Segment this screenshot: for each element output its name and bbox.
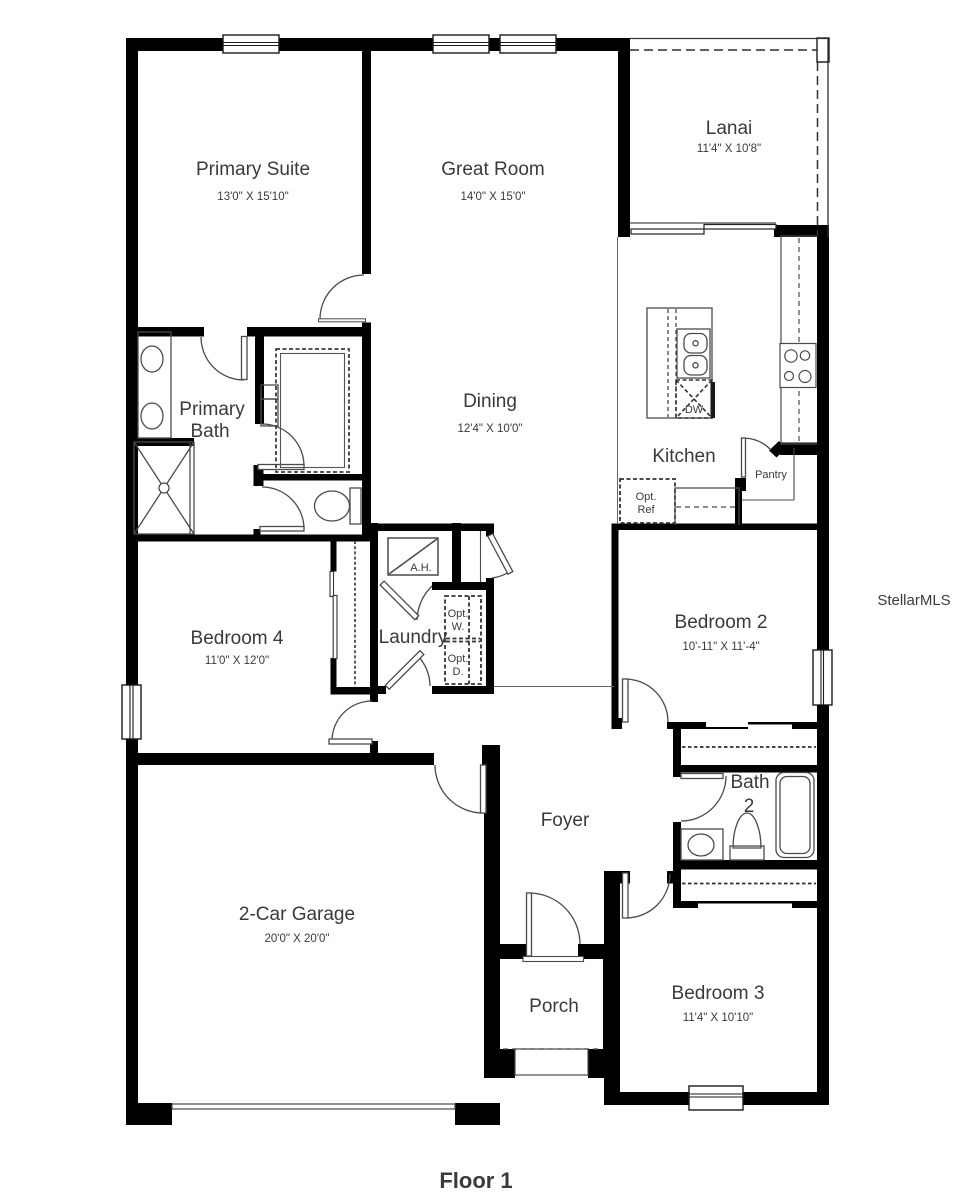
svg-text:Dining: Dining — [463, 391, 517, 412]
svg-text:20'0" X 20'0": 20'0" X 20'0" — [265, 933, 330, 945]
svg-text:Ref: Ref — [637, 504, 655, 516]
svg-text:Primary Suite: Primary Suite — [196, 159, 310, 180]
svg-text:Bath: Bath — [190, 421, 229, 442]
svg-text:2: 2 — [744, 796, 755, 817]
svg-text:A.H.: A.H. — [410, 562, 431, 574]
svg-text:StellarMLS: StellarMLS — [877, 592, 950, 609]
svg-text:Pantry: Pantry — [755, 469, 787, 481]
svg-text:Foyer: Foyer — [541, 810, 590, 831]
svg-text:Bedroom 3: Bedroom 3 — [672, 983, 765, 1004]
svg-text:D.: D. — [453, 666, 464, 678]
svg-text:Bath: Bath — [730, 772, 769, 793]
svg-text:14'0" X 15'0": 14'0" X 15'0" — [461, 191, 526, 203]
svg-text:Opt.: Opt. — [448, 653, 469, 665]
svg-text:Laundry: Laundry — [379, 627, 448, 648]
svg-text:Primary: Primary — [179, 399, 245, 420]
svg-text:Porch: Porch — [529, 996, 579, 1017]
svg-text:10'-11" X 11'-4": 10'-11" X 11'-4" — [682, 641, 759, 653]
svg-text:13'0" X 15'10": 13'0" X 15'10" — [217, 191, 288, 203]
svg-text:Floor 1: Floor 1 — [439, 1168, 512, 1193]
svg-text:DW: DW — [685, 404, 704, 416]
svg-text:Bedroom 2: Bedroom 2 — [675, 612, 768, 633]
svg-text:12'4" X 10'0": 12'4" X 10'0" — [458, 423, 523, 435]
svg-text:11'0" X 12'0": 11'0" X 12'0" — [205, 655, 269, 667]
svg-text:11'4" X 10'10": 11'4" X 10'10" — [683, 1012, 754, 1024]
svg-text:Lanai: Lanai — [706, 118, 753, 139]
svg-text:11'4" X 10'8": 11'4" X 10'8" — [697, 143, 761, 155]
svg-text:Kitchen: Kitchen — [652, 446, 715, 467]
svg-text:Opt.: Opt. — [448, 608, 469, 620]
svg-text:Opt.: Opt. — [636, 491, 657, 503]
svg-text:2-Car Garage: 2-Car Garage — [239, 904, 355, 925]
svg-text:Great Room: Great Room — [441, 159, 544, 180]
svg-text:Bedroom 4: Bedroom 4 — [191, 628, 284, 649]
svg-text:W.: W. — [452, 621, 465, 633]
